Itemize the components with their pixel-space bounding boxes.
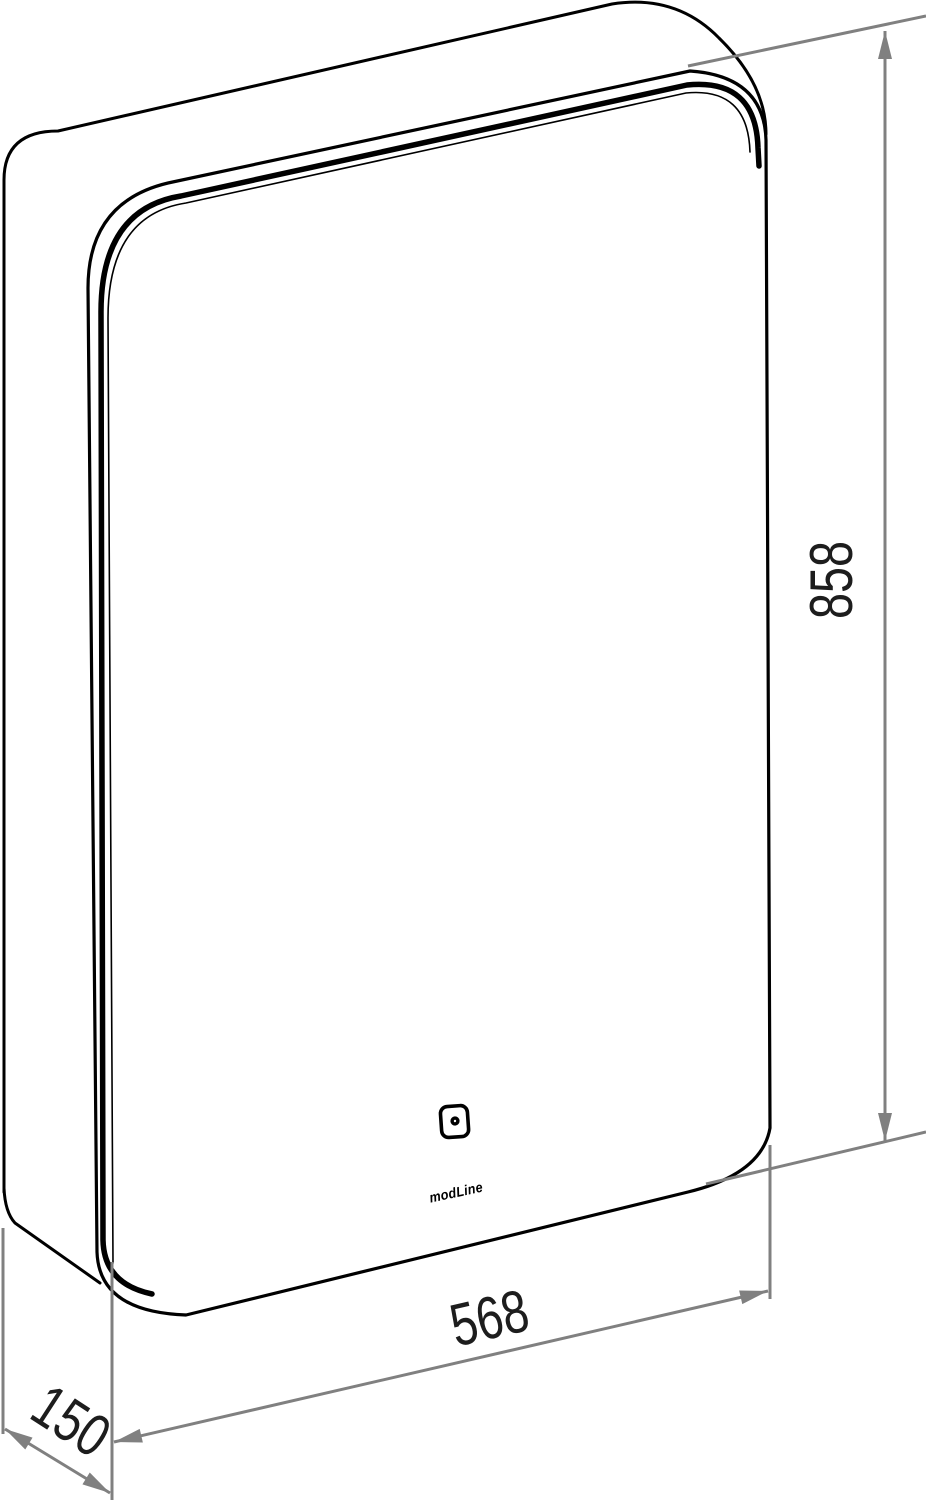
width-dimension-line: [114, 1291, 768, 1442]
cabinet-body-bottom-edge: [4, 1188, 100, 1283]
brand-logo: modLine: [428, 1179, 485, 1206]
cabinet-body-outline: [4, 2, 766, 1192]
mirror-cabinet-drawing: modLine 858 568 150: [0, 0, 926, 1500]
led-strip-thin-line: [108, 92, 750, 1263]
touch-sensor-icon: [440, 1105, 469, 1138]
cabinet-door-outline: [88, 71, 770, 1315]
technical-drawing-canvas: modLine 858 568 150: [0, 0, 926, 1500]
height-dimension-label: 858: [798, 541, 865, 619]
depth-dimension-label: 150: [20, 1372, 122, 1471]
height-extension-line-bottom: [706, 1132, 926, 1184]
led-strip-thick-line: [101, 84, 759, 1294]
